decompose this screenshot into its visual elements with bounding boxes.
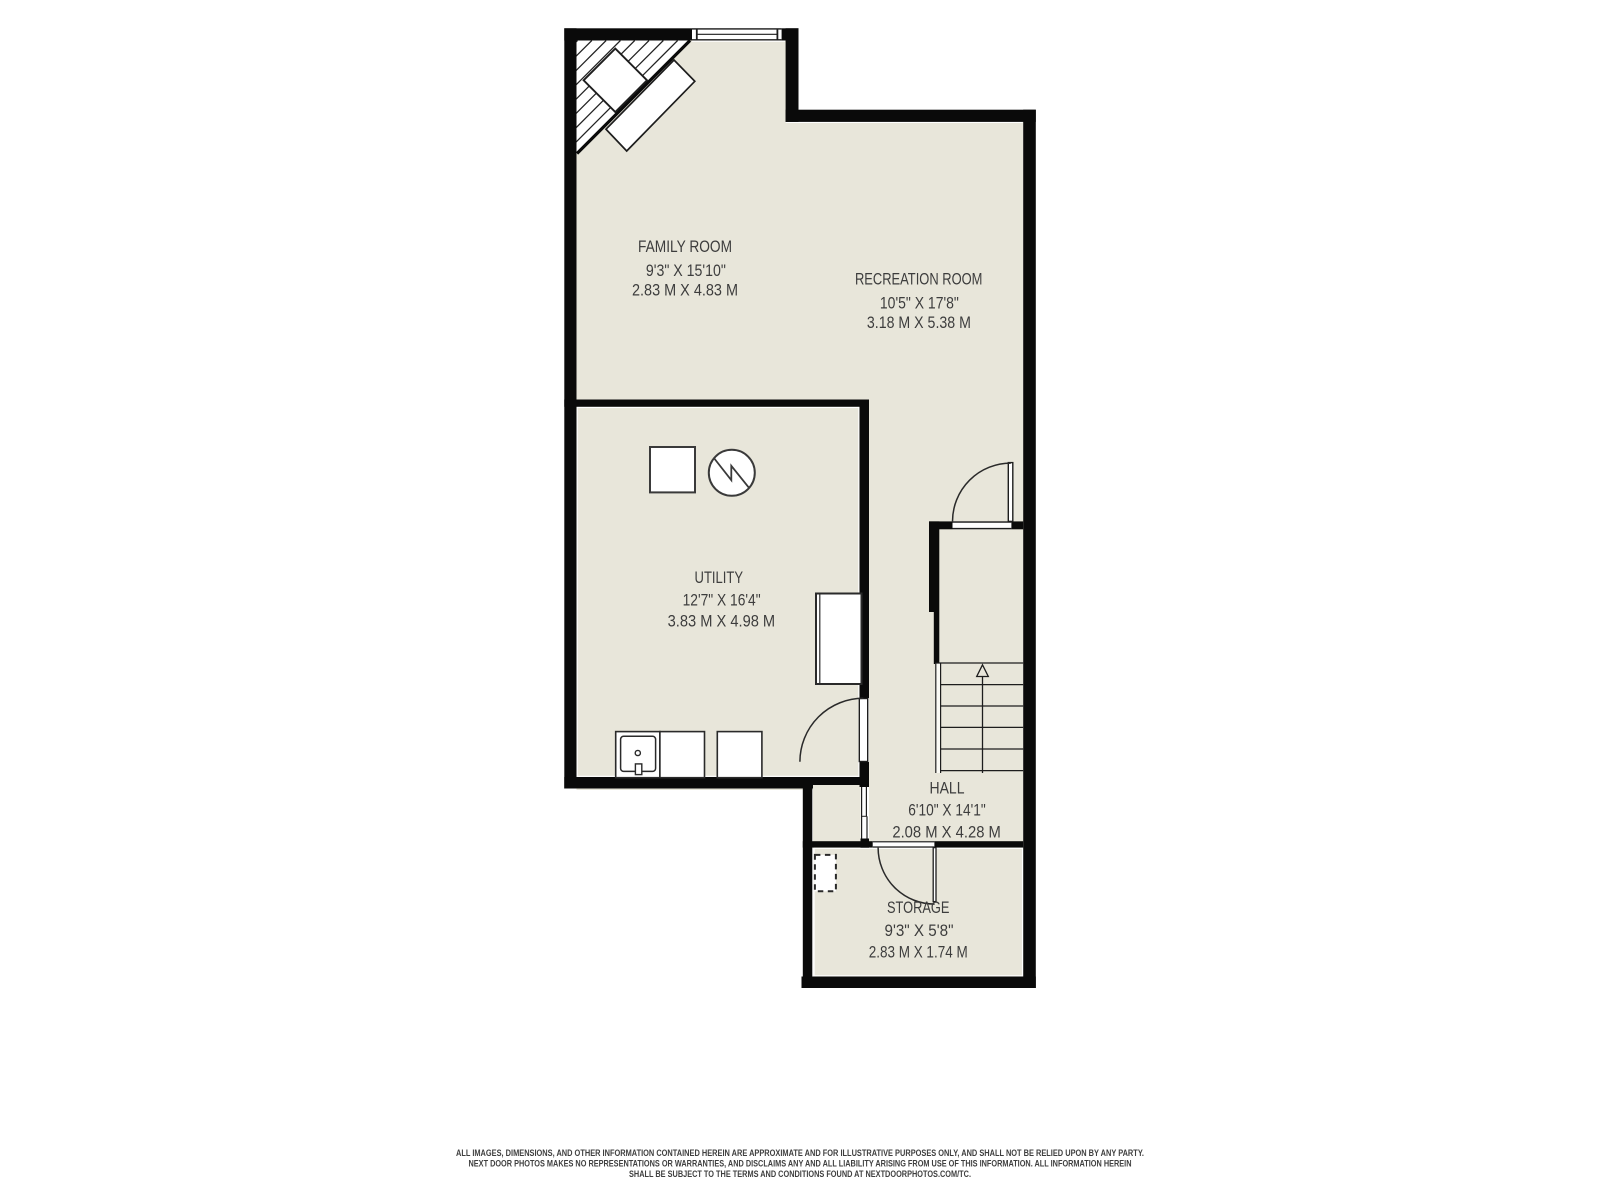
- svg-text:NEXT DOOR PHOTOS MAKES NO REPR: NEXT DOOR PHOTOS MAKES NO REPRESENTATION…: [469, 1158, 1132, 1169]
- svg-text:3.83 M X 4.98 M: 3.83 M X 4.98 M: [668, 613, 776, 631]
- svg-text:2.83 M X 4.83 M: 2.83 M X 4.83 M: [632, 282, 738, 300]
- svg-text:UTILITY: UTILITY: [695, 569, 744, 587]
- svg-text:10'5" X 17'8": 10'5" X 17'8": [880, 295, 959, 313]
- svg-text:2.08 M X 4.28 M: 2.08 M X 4.28 M: [892, 823, 1001, 841]
- svg-text:2.83 M X 1.74 M: 2.83 M X 1.74 M: [869, 944, 968, 962]
- svg-text:HALL: HALL: [930, 780, 965, 798]
- svg-text:ALL IMAGES, DIMENSIONS, AND OT: ALL IMAGES, DIMENSIONS, AND OTHER INFORM…: [456, 1148, 1144, 1159]
- svg-text:3.18 M X 5.38 M: 3.18 M X 5.38 M: [867, 314, 971, 332]
- svg-text:FAMILY ROOM: FAMILY ROOM: [638, 238, 732, 256]
- svg-text:12'7" X 16'4": 12'7" X 16'4": [683, 592, 761, 610]
- svg-text:RECREATION ROOM: RECREATION ROOM: [855, 271, 983, 289]
- svg-text:9'3" X 5'8": 9'3" X 5'8": [885, 922, 954, 940]
- svg-text:6'10" X 14'1": 6'10" X 14'1": [908, 802, 986, 820]
- svg-text:STORAGE: STORAGE: [887, 899, 950, 917]
- svg-text:9'3" X 15'10": 9'3" X 15'10": [646, 262, 726, 280]
- svg-text:SHALL BE SUBJECT TO THE TERMS: SHALL BE SUBJECT TO THE TERMS AND CONDIT…: [629, 1169, 971, 1180]
